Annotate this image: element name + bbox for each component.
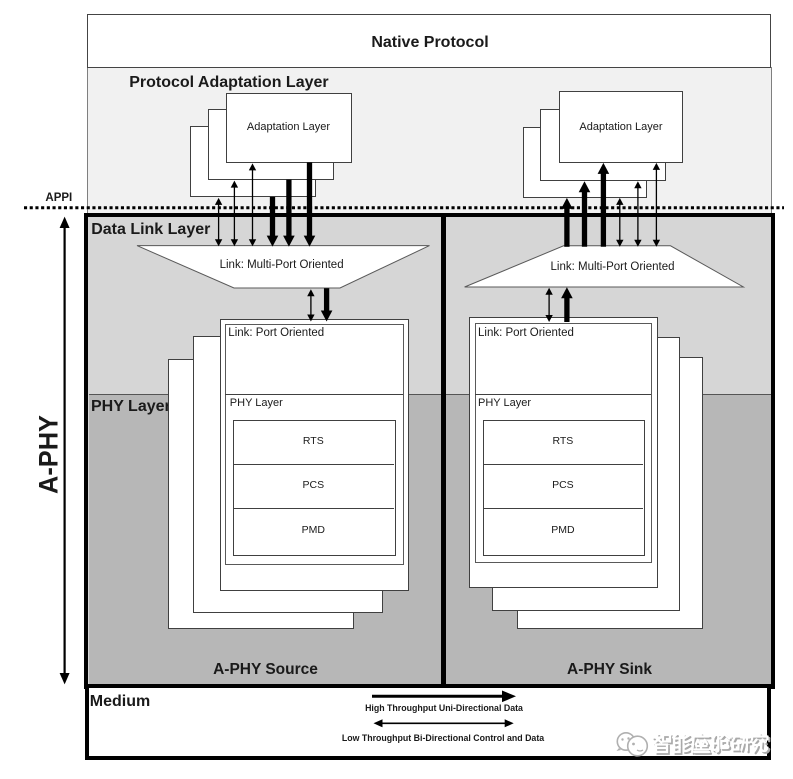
- svg-text:Link: Multi-Port Oriented: Link: Multi-Port Oriented: [551, 261, 675, 273]
- svg-text:Link: Multi-Port Oriented: Link: Multi-Port Oriented: [220, 259, 344, 271]
